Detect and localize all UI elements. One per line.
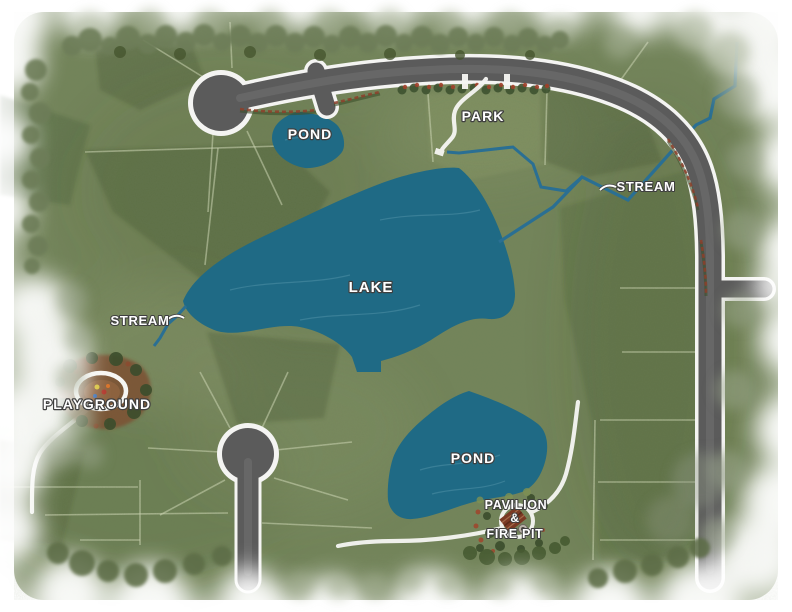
- label-pond-bottom: POND: [451, 450, 495, 466]
- map-illustration: POND PARK STREAM LAKE STREAM PLAYGROUND …: [0, 0, 792, 612]
- label-stream-right: STREAM: [616, 179, 675, 194]
- cul-de-sac-north: [193, 75, 249, 131]
- label-pavilion-line1: PAVILION: [485, 498, 548, 512]
- label-pavilion-line3: FIRE PIT: [487, 527, 544, 541]
- label-stream-left: STREAM: [110, 313, 169, 328]
- label-playground: PLAYGROUND: [43, 396, 151, 412]
- label-pavilion-line2: &: [510, 511, 519, 525]
- park-hedge-gap-west: [462, 74, 468, 89]
- label-park: PARK: [462, 108, 505, 124]
- park-hedge-gap-east: [504, 74, 510, 89]
- label-pond-top: POND: [288, 126, 332, 142]
- label-lake: LAKE: [349, 279, 394, 296]
- pond-road-stub: [316, 71, 327, 107]
- site-plan-map: POND PARK STREAM LAKE STREAM PLAYGROUND …: [0, 0, 792, 612]
